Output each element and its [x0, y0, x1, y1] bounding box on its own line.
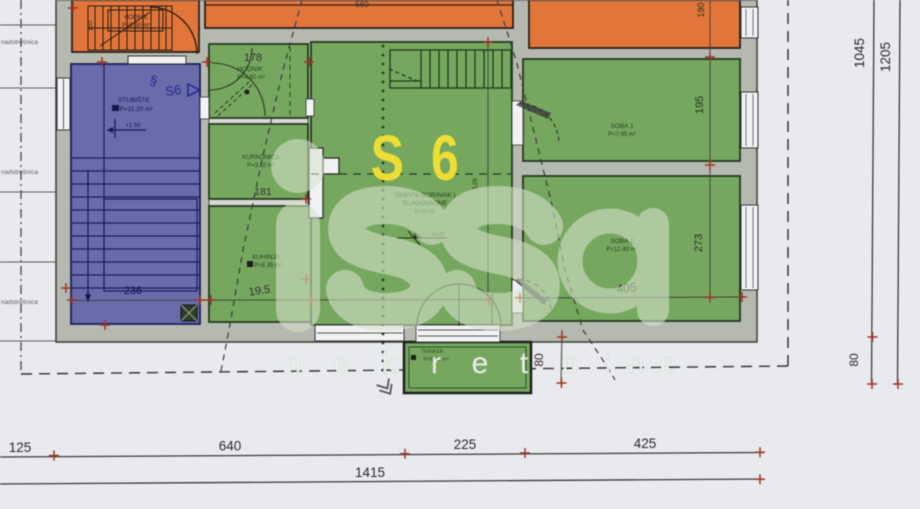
svg-text:P=12.40 m²: P=12.40 m² [606, 247, 637, 253]
svg-text:n: n [628, 347, 645, 380]
svg-text:80: 80 [532, 353, 546, 367]
svg-text:r: r [431, 347, 441, 380]
svg-text:80: 80 [847, 353, 861, 367]
svg-text:n: n [285, 347, 302, 380]
svg-text:181: 181 [254, 186, 272, 198]
svg-text:225: 225 [454, 437, 477, 452]
svg-text:+1.50: +1.50 [125, 123, 141, 129]
svg-text:425: 425 [634, 436, 657, 451]
svg-text:190: 190 [696, 2, 706, 17]
svg-text:t: t [520, 347, 529, 380]
svg-text:S6: S6 [164, 82, 182, 99]
svg-text:HODNIK: HODNIK [124, 15, 147, 21]
svg-text:P=7.95 m²: P=7.95 m² [608, 132, 636, 138]
svg-text:P=5.60 m²: P=5.60 m² [122, 23, 150, 29]
svg-text:1205: 1205 [878, 42, 893, 72]
svg-text:S 6: S 6 [371, 123, 466, 194]
svg-text:nadstrešnica: nadstrešnica [1, 299, 38, 306]
svg-text:560: 560 [355, 0, 369, 9]
svg-text:P=4.60 m²: P=4.60 m² [237, 75, 265, 81]
svg-text:125: 125 [9, 440, 32, 455]
svg-text:n: n [562, 347, 579, 380]
svg-text:e: e [334, 347, 351, 380]
svg-text:195: 195 [694, 96, 706, 114]
svg-text:SOBA 1: SOBA 1 [610, 123, 634, 130]
svg-text:273: 273 [693, 234, 705, 252]
svg-text:STUBIŠTE: STUBIŠTE [118, 95, 150, 104]
svg-text:nadstrešnica: nadstrešnica [1, 39, 38, 46]
svg-text:e: e [472, 347, 489, 380]
svg-text:HODNIK: HODNIK [237, 66, 263, 73]
svg-text:P=11.20 m²: P=11.20 m² [119, 106, 153, 113]
svg-text:150: 150 [87, 20, 94, 31]
svg-text:nadstrešnica: nadstrešnica [1, 169, 38, 176]
svg-text:1045: 1045 [852, 38, 867, 68]
svg-text:178: 178 [244, 52, 262, 64]
svg-text:236: 236 [124, 285, 142, 297]
svg-text:640: 640 [219, 439, 242, 454]
svg-text:1415: 1415 [355, 465, 385, 480]
svg-text:e: e [660, 347, 677, 380]
svg-text:i: i [605, 347, 612, 380]
svg-text:k: k [382, 347, 398, 380]
